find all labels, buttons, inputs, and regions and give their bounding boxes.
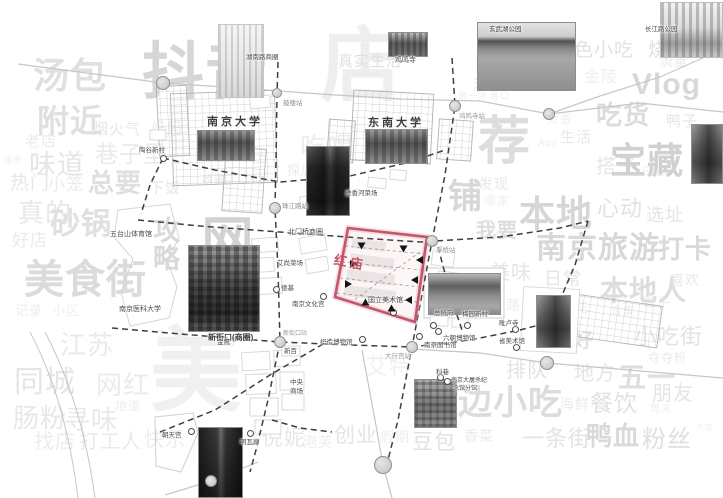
map-label: 南京大学: [207, 116, 263, 129]
metro-station-marker[interactable]: [449, 100, 461, 112]
map-label: 南京医科大学: [119, 306, 161, 314]
map-label: 珠江路站: [282, 203, 308, 211]
map-label: 浮桥站: [436, 247, 456, 255]
metro-station-marker[interactable]: [269, 202, 281, 214]
map-label: 陶谷新村: [139, 147, 165, 155]
metro-station-marker[interactable]: [205, 475, 217, 487]
flow-arrow-icon: [388, 305, 396, 312]
poi-marker[interactable]: [320, 293, 327, 300]
map-label: 南京大屠杀纪: [451, 378, 487, 385]
nanjing-map-canvas: 汤包抖音店真实生活吃喝探店收藏下饭妈妈烟火气附近老店城市味道巷子里热门小笼总要真…: [0, 0, 723, 498]
southeast-university-photo: [365, 129, 428, 164]
flow-arrow-icon: [411, 276, 418, 284]
xinjiekou-photo: [188, 245, 260, 332]
poi-marker[interactable]: [359, 336, 366, 343]
flow-arrow-icon: [358, 243, 366, 250]
map-label: 新街口站: [283, 331, 307, 338]
map-label: 中央: [290, 379, 303, 387]
map-label: 长江路公园: [645, 26, 678, 34]
flow-arrow-icon: [416, 256, 423, 264]
poi-marker[interactable]: [464, 322, 471, 329]
map-label: 国立美术馆: [368, 297, 403, 305]
poi-marker[interactable]: [247, 430, 254, 437]
metro-station-marker[interactable]: [374, 456, 392, 474]
map-label: 商场: [290, 388, 303, 396]
map-label: 金鹰: [217, 339, 230, 347]
map-label: 东南大学: [368, 117, 424, 130]
flow-arrow-icon: [405, 296, 412, 304]
map-label: 鸡鸣寺: [395, 57, 416, 65]
map-label: 科巷: [436, 369, 449, 377]
map-label: 新百: [284, 348, 297, 356]
presidential-palace-photo: [428, 273, 501, 315]
poi-marker[interactable]: [435, 328, 442, 335]
map-label: 南京文化宫: [292, 301, 325, 309]
jiming-temple-photo: [388, 32, 428, 57]
map-label: 鼓楼站: [283, 100, 303, 108]
map-label: 进香河菜场: [345, 190, 378, 198]
metro-station-marker[interactable]: [272, 88, 282, 98]
map-label: 毗卢寺: [499, 320, 519, 328]
map-label: 德基: [281, 285, 294, 293]
poi-marker[interactable]: [273, 286, 280, 293]
map-label: 五台山体育馆: [110, 231, 152, 239]
map-label: 梅园新村: [462, 311, 488, 319]
map-label: 大行宫站: [385, 353, 411, 361]
metro-station-marker[interactable]: [406, 341, 418, 353]
map-label: 朝天宫: [162, 432, 182, 440]
metro-station-marker[interactable]: [156, 76, 170, 90]
skyscraper-photo: [306, 146, 350, 216]
map-label: 织造博物馆: [320, 339, 353, 347]
map-label: 北门桥商圈: [288, 229, 323, 237]
old-street-photo: [198, 427, 243, 498]
map-label: 新街口(商圈): [208, 333, 253, 343]
map-label: 南京图书馆: [424, 342, 457, 350]
map-label: 六朝博物馆: [443, 335, 476, 343]
flow-arrow-icon: [345, 280, 352, 288]
nanjing-university-photo: [197, 130, 255, 161]
map-label: 艾尚菜场: [277, 260, 303, 268]
flow-arrow-icon: [400, 246, 408, 253]
east-temple-photo: [691, 124, 723, 184]
metro-station-marker[interactable]: [543, 108, 555, 120]
map-label: 鸡鸣寺站: [459, 113, 485, 121]
map-label: 总统府: [434, 310, 454, 318]
poi-marker[interactable]: [160, 155, 167, 162]
highlight-zone[interactable]: [335, 228, 427, 322]
map-label: 湖南路商圈: [246, 54, 279, 62]
map-label: 念馆分馆: [453, 386, 477, 393]
map-label: 明瓦廊: [240, 439, 260, 447]
district-outlines: [114, 204, 198, 472]
pilu-temple-photo: [536, 295, 571, 348]
poi-marker[interactable]: [188, 428, 195, 435]
kexiang-photo: [414, 379, 457, 428]
metro-station-marker[interactable]: [426, 235, 438, 247]
poi-marker[interactable]: [444, 378, 451, 385]
map-label: 省美术馆: [499, 338, 525, 346]
map-label: 玄武湖公园: [489, 26, 522, 34]
metro-station-marker[interactable]: [540, 356, 554, 370]
poi-marker[interactable]: [416, 333, 423, 340]
poi-marker[interactable]: [430, 322, 437, 329]
